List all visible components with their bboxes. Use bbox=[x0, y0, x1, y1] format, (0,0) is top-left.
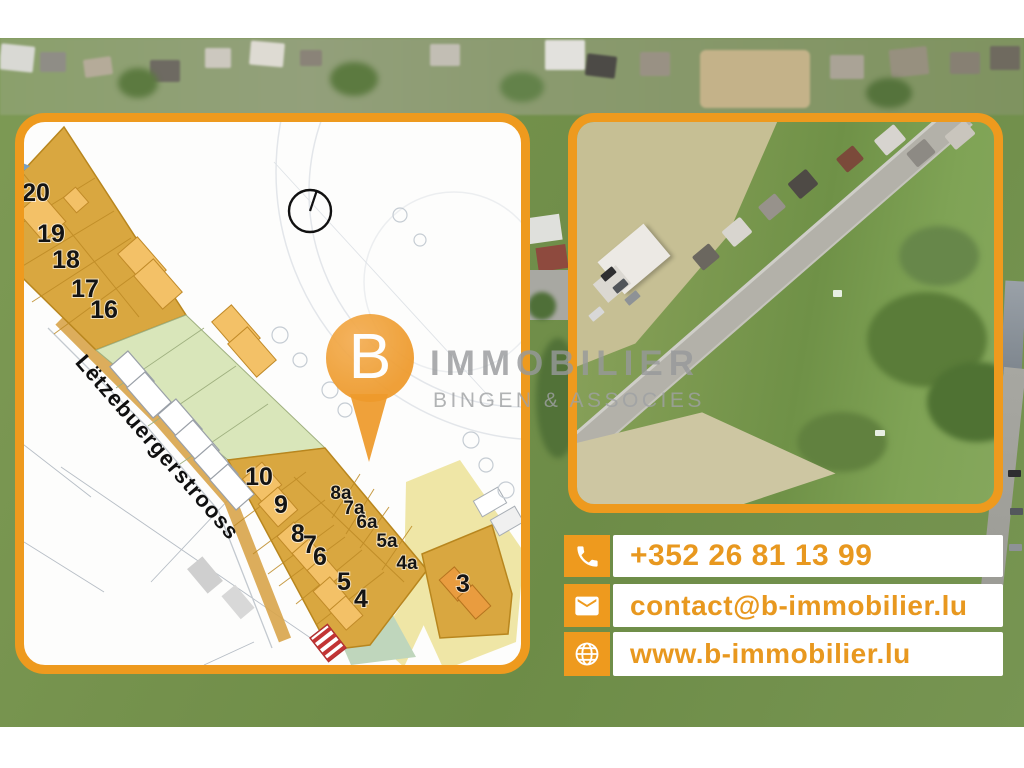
drone-photo-panel bbox=[568, 113, 1003, 513]
dirt-field bbox=[700, 50, 810, 108]
site-plan-panel: Lëtzebuergerstrooss 20 19 18 17 16 10 9 … bbox=[15, 113, 530, 674]
gap-tree bbox=[528, 292, 556, 320]
lot-label-4a: 4a bbox=[396, 553, 418, 574]
top-white-strip bbox=[0, 0, 1024, 38]
field-object bbox=[833, 290, 842, 297]
roof bbox=[836, 145, 864, 173]
roof bbox=[787, 169, 818, 200]
lot-label-19: 19 bbox=[37, 220, 65, 248]
roof bbox=[640, 52, 670, 76]
roof bbox=[205, 48, 231, 68]
lot-label-4: 4 bbox=[354, 585, 368, 613]
website-url: www.b-immobilier.lu bbox=[630, 638, 911, 670]
roof bbox=[249, 41, 285, 68]
contact-row-phone: +352 26 81 13 99 bbox=[564, 535, 1003, 577]
tree-blob bbox=[500, 72, 544, 102]
roof bbox=[830, 55, 864, 79]
lot-label-5: 5 bbox=[337, 568, 351, 596]
phone-icon bbox=[564, 535, 610, 577]
car bbox=[1008, 470, 1021, 477]
lot-label-10: 10 bbox=[245, 463, 273, 491]
contact-row-email: contact@b-immobilier.lu bbox=[564, 584, 1003, 627]
car bbox=[1010, 508, 1023, 515]
roof bbox=[950, 52, 980, 74]
lot-label-3: 3 bbox=[456, 570, 470, 598]
bottom-white-strip bbox=[0, 727, 1024, 768]
lot-label-6: 6 bbox=[313, 543, 327, 571]
phone-number: +352 26 81 13 99 bbox=[630, 539, 872, 573]
roof bbox=[585, 53, 617, 78]
field-object bbox=[875, 430, 885, 436]
tree-blob bbox=[330, 62, 378, 96]
email-address: contact@b-immobilier.lu bbox=[630, 590, 968, 622]
car bbox=[1009, 544, 1022, 551]
gap-building-roof bbox=[525, 214, 562, 244]
background-village-band bbox=[0, 38, 1024, 115]
site-plan-drawing: Lëtzebuergerstrooss 20 19 18 17 16 10 9 … bbox=[24, 122, 521, 665]
lot-label-18: 18 bbox=[52, 246, 80, 274]
envelope-icon bbox=[564, 584, 610, 627]
contour-arcs bbox=[276, 122, 521, 440]
tree-blob bbox=[118, 68, 158, 98]
roof bbox=[83, 56, 113, 78]
tree-blob bbox=[899, 226, 979, 286]
roof bbox=[430, 44, 460, 66]
lot-label-6a: 6a bbox=[356, 512, 378, 533]
website-bar: www.b-immobilier.lu bbox=[613, 632, 1003, 676]
lot-label-5a: 5a bbox=[376, 531, 398, 552]
email-bar: contact@b-immobilier.lu bbox=[613, 584, 1003, 627]
roof bbox=[40, 52, 66, 72]
north-arrow-symbol bbox=[289, 190, 331, 232]
right-edge-building-roof bbox=[1001, 281, 1024, 374]
roof bbox=[300, 50, 322, 66]
lot-label-9: 9 bbox=[274, 491, 288, 519]
phone-bar: +352 26 81 13 99 bbox=[613, 535, 1003, 577]
tree-blob bbox=[866, 78, 912, 108]
contact-row-website: www.b-immobilier.lu bbox=[564, 632, 1003, 676]
roof bbox=[990, 46, 1020, 70]
lot-label-20: 20 bbox=[24, 179, 50, 207]
roof bbox=[758, 193, 786, 221]
roof bbox=[889, 46, 930, 78]
gap-red-roof-house bbox=[535, 244, 568, 272]
globe-icon bbox=[564, 632, 610, 676]
roof bbox=[545, 40, 585, 70]
lot-label-16: 16 bbox=[90, 296, 118, 324]
roof bbox=[0, 43, 35, 72]
